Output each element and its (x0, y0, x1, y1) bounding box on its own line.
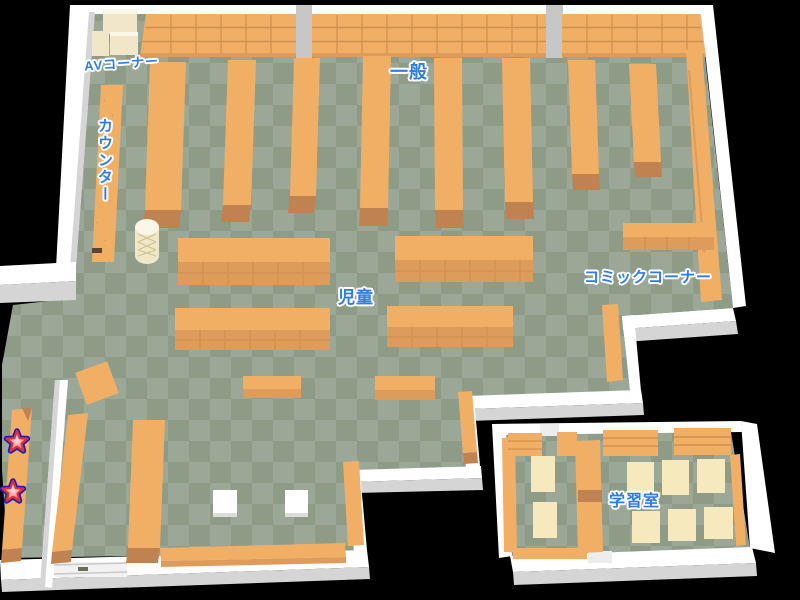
bookshelf-base (572, 174, 600, 190)
left-wedge-wall-top (0, 262, 76, 285)
bookshelf-column (434, 58, 463, 210)
top-wall (88, 5, 708, 14)
divider-gap (578, 490, 602, 502)
top-wall-gap-left (296, 5, 312, 58)
study-table (697, 459, 725, 493)
bookshelf-base (51, 550, 72, 564)
bookshelf-column (360, 56, 391, 208)
bookshelf-column (145, 62, 186, 210)
counter-book (92, 248, 102, 253)
bookshelf-bank (508, 433, 542, 456)
study-inner-door-gap (540, 424, 559, 436)
low-shelf-front (243, 389, 301, 398)
bookshelf-column (128, 420, 165, 548)
low-shelf-top (395, 236, 533, 260)
bookshelf-base (463, 452, 478, 464)
shelf-base-edge (312, 53, 546, 57)
bookshelf-bank (674, 428, 731, 455)
shelf-base-edge (140, 53, 296, 57)
study-door-gap (588, 551, 612, 563)
low-shelf-top (387, 306, 513, 327)
reading-table-edge (213, 513, 237, 517)
map-canvas (0, 0, 800, 600)
bookshelf-column (629, 64, 661, 162)
label-children: 児童 (338, 283, 374, 308)
reading-table (285, 490, 308, 516)
study-table (704, 507, 733, 539)
study-table (632, 511, 660, 543)
library-floor-map: AVコーナー カウンター 一般 児童 コミックコーナー 学習室 (0, 0, 800, 600)
entrance-door (54, 562, 127, 577)
reading-table (213, 490, 237, 516)
low-shelf-top (375, 376, 435, 390)
low-shelf-top (178, 238, 330, 262)
bookshelf-column (290, 58, 320, 196)
bookshelf-bank (562, 14, 706, 57)
label-general: 一般 (390, 58, 428, 84)
bookshelf-column (568, 60, 599, 174)
bookshelf-column (502, 58, 533, 202)
shelf-base-edge (562, 53, 706, 57)
study-table (533, 502, 557, 538)
bookshelf-base (435, 210, 464, 228)
study-table (662, 460, 689, 495)
bookshelf-bank (603, 430, 658, 456)
reading-table-edge (285, 513, 308, 517)
top-shelf-banks (140, 14, 706, 57)
label-counter: カウンター (94, 118, 115, 203)
bookshelf-base (126, 548, 160, 563)
bookshelf-base (1, 548, 22, 563)
bookshelf-top (623, 223, 714, 237)
bookshelf-bank (140, 14, 296, 57)
bookshelf-bank (557, 432, 577, 456)
av-unit (92, 31, 109, 56)
bookshelf-base (288, 196, 316, 213)
door-handle (78, 567, 88, 571)
bookshelf-base (359, 208, 388, 226)
low-shelf-top (175, 308, 330, 330)
bookshelf-bank (312, 14, 546, 57)
top-wall-gap-right (546, 5, 563, 58)
bookshelf-base (634, 162, 662, 177)
study-table (531, 456, 555, 492)
bottom-wall-shelf (513, 548, 587, 559)
bookshelf-front (623, 237, 714, 250)
bookshelf-column (223, 60, 256, 205)
bookshelf-base (505, 202, 534, 219)
label-study-room: 学習室 (609, 487, 660, 511)
low-shelf-front (375, 390, 435, 400)
low-shelf-top (243, 376, 301, 389)
label-comic-corner: コミックコーナー (584, 266, 712, 287)
magazine-rack (135, 219, 159, 264)
study-table (668, 509, 696, 541)
magazine-rack-top (135, 219, 159, 235)
bookshelf-base (221, 205, 251, 222)
